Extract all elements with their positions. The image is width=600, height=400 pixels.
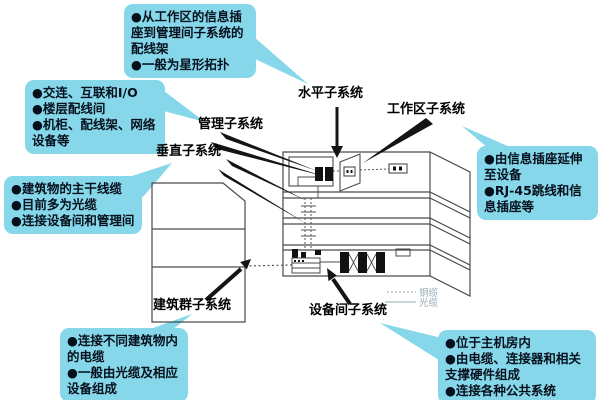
workarea-callout-tail [462,126,512,148]
vertical-subsystem-note: ●建筑物的主干线缆 ●目前多为光缆 ●连接设备间和管理间 [4,176,142,234]
management-subsystem-note: ●交连、互联和I/O ●楼层配线间 ●机柜、配线架、网络设备等 [25,80,165,154]
note-item: ●建筑物的主干线缆 [11,181,135,197]
pointer-arrows [206,107,433,304]
patch-panel-icon [325,167,333,181]
vertical-subsystem-pointer [218,169,307,224]
campus-subsystem-note: ●连接不同建筑物内的电缆 ●一般由光缆及相应设备组成 [60,328,188,400]
device-icon [292,249,298,258]
cable-legend: 铜缆 光缆 [385,287,439,309]
partition-wall [340,154,360,191]
workarea-subsystem-pointer [363,118,433,163]
vertical-subsystem-label: 垂直子系统 [156,145,221,160]
campus-subsystem-label: 建筑群子系统 [153,299,231,314]
note-item: ●目前多为光缆 [11,197,135,213]
horizontal-cable-dashed [333,169,389,171]
workarea-subsystem-label: 工作区子系统 [387,103,465,118]
mdf-rack-icon [376,252,385,273]
horizontal-subsystem-arrow [331,107,343,158]
note-item: ●由信息插座延伸至设备 [484,151,591,183]
equipment-subsystem-label: 设备间子系统 [309,304,387,319]
device-icon [315,250,321,255]
workarea-outlet [389,164,407,173]
mdf-rack-icon [340,252,349,273]
management-subsystem-pointer [211,142,327,177]
management-subsystem-label: 管理子系统 [198,118,263,133]
device-icon [301,252,306,258]
note-item: ●一般由光缆及相应设备组成 [67,365,181,397]
note-item: ●连接设备间和管理间 [11,213,135,229]
note-item: ●位于主机房内 [445,335,589,351]
note-item: ●从工作区的信息插座到管理间子系统的配线架 [131,9,249,57]
mdf-rack-icon [358,252,367,273]
horizontal-subsystem-label: 水平子系统 [298,87,363,102]
equipment-subsystem-note: ●位于主机房内 ●由电缆、连接器和相关支撑硬件组成 ●连接各种公共系统 [438,330,596,400]
equipment-subsystem-arrow [327,268,350,304]
horizontal-subsystem-note: ●从工作区的信息插座到管理间子系统的配线架 ●一般为星形拓扑 [124,4,256,78]
campus-cable-dashed [245,265,292,266]
rack-icon [292,258,320,273]
top-callout-tail [253,36,308,84]
note-item: ●连接各种公共系统 [445,383,589,399]
equipment-callout-tail [380,323,442,362]
campus-subsystem-arrow [206,259,251,300]
wall-outlet-icon [344,167,355,176]
structured-cabling-diagram: 铜缆 光缆 ●从工作区的信息插座到管理间子系统的配线架 ●一般为星形拓扑 ●交连… [0,0,600,400]
note-item: ●由电缆、连接器和相关支撑硬件组成 [445,351,589,383]
note-item: ●交连、互联和I/O [32,85,158,101]
equipment-room-devices [292,249,410,273]
note-item: ●楼层配线间 [32,101,158,117]
fiber-legend-label: 光缆 [419,297,439,309]
note-item: ●连接不同建筑物内的电缆 [67,333,181,365]
note-item: ●一般为星形拓扑 [131,57,249,73]
note-item: ●RJ-45跳线和信息插座等 [484,183,591,215]
note-item: ●机柜、配线架、网络设备等 [32,117,158,149]
workarea-subsystem-note: ●由信息插座延伸至设备 ●RJ-45跳线和信息插座等 [477,146,598,220]
